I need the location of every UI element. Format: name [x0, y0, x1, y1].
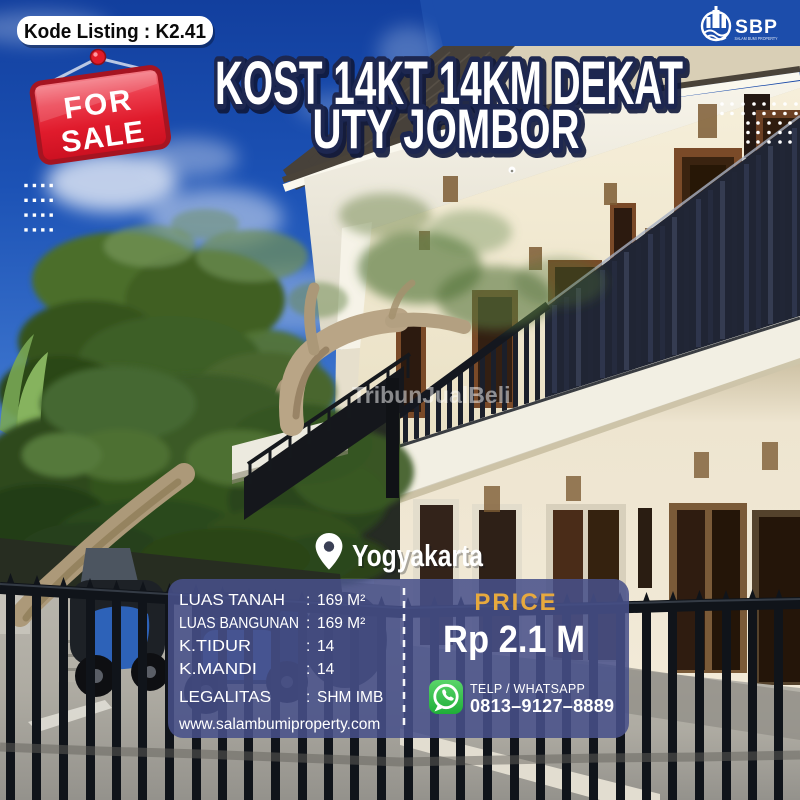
- svg-text:0813–9127–8889: 0813–9127–8889: [470, 696, 614, 716]
- svg-text:SBP: SBP: [735, 17, 778, 38]
- svg-text::: :: [306, 661, 310, 678]
- svg-text:UTY JOMBOR: UTY JOMBOR: [313, 97, 580, 160]
- svg-text:169 M²: 169 M²: [317, 615, 365, 632]
- svg-text:TribunJualBeli: TribunJualBeli: [352, 382, 510, 408]
- svg-text:169 M²: 169 M²: [317, 592, 365, 609]
- svg-text:TELP / WHATSAPP: TELP / WHATSAPP: [470, 682, 585, 696]
- svg-text:LUAS TANAH: LUAS TANAH: [179, 592, 285, 609]
- svg-text:SHM IMB: SHM IMB: [317, 689, 383, 706]
- svg-text::: :: [306, 689, 310, 706]
- svg-text:LEGALITAS: LEGALITAS: [179, 689, 271, 706]
- svg-text:14: 14: [317, 661, 335, 678]
- svg-text:Kode Listing : K2.41: Kode Listing : K2.41: [24, 21, 206, 43]
- svg-text:Rp 2.1 M: Rp 2.1 M: [443, 619, 585, 661]
- svg-text:Yogyakarta: Yogyakarta: [352, 538, 484, 573]
- svg-text::: :: [306, 615, 310, 632]
- svg-text:14: 14: [317, 638, 335, 655]
- svg-text::: :: [306, 638, 310, 655]
- svg-text:LUAS BANGUNAN: LUAS BANGUNAN: [179, 615, 299, 632]
- svg-text:K.MANDI: K.MANDI: [179, 661, 257, 678]
- svg-text::: :: [306, 592, 310, 609]
- svg-text:K.TIDUR: K.TIDUR: [179, 638, 251, 655]
- svg-text:PRICE: PRICE: [474, 589, 557, 616]
- svg-text:www.salambumiproperty.com: www.salambumiproperty.com: [178, 716, 380, 733]
- svg-text:SALAM BUMI PROPERTY: SALAM BUMI PROPERTY: [735, 36, 778, 41]
